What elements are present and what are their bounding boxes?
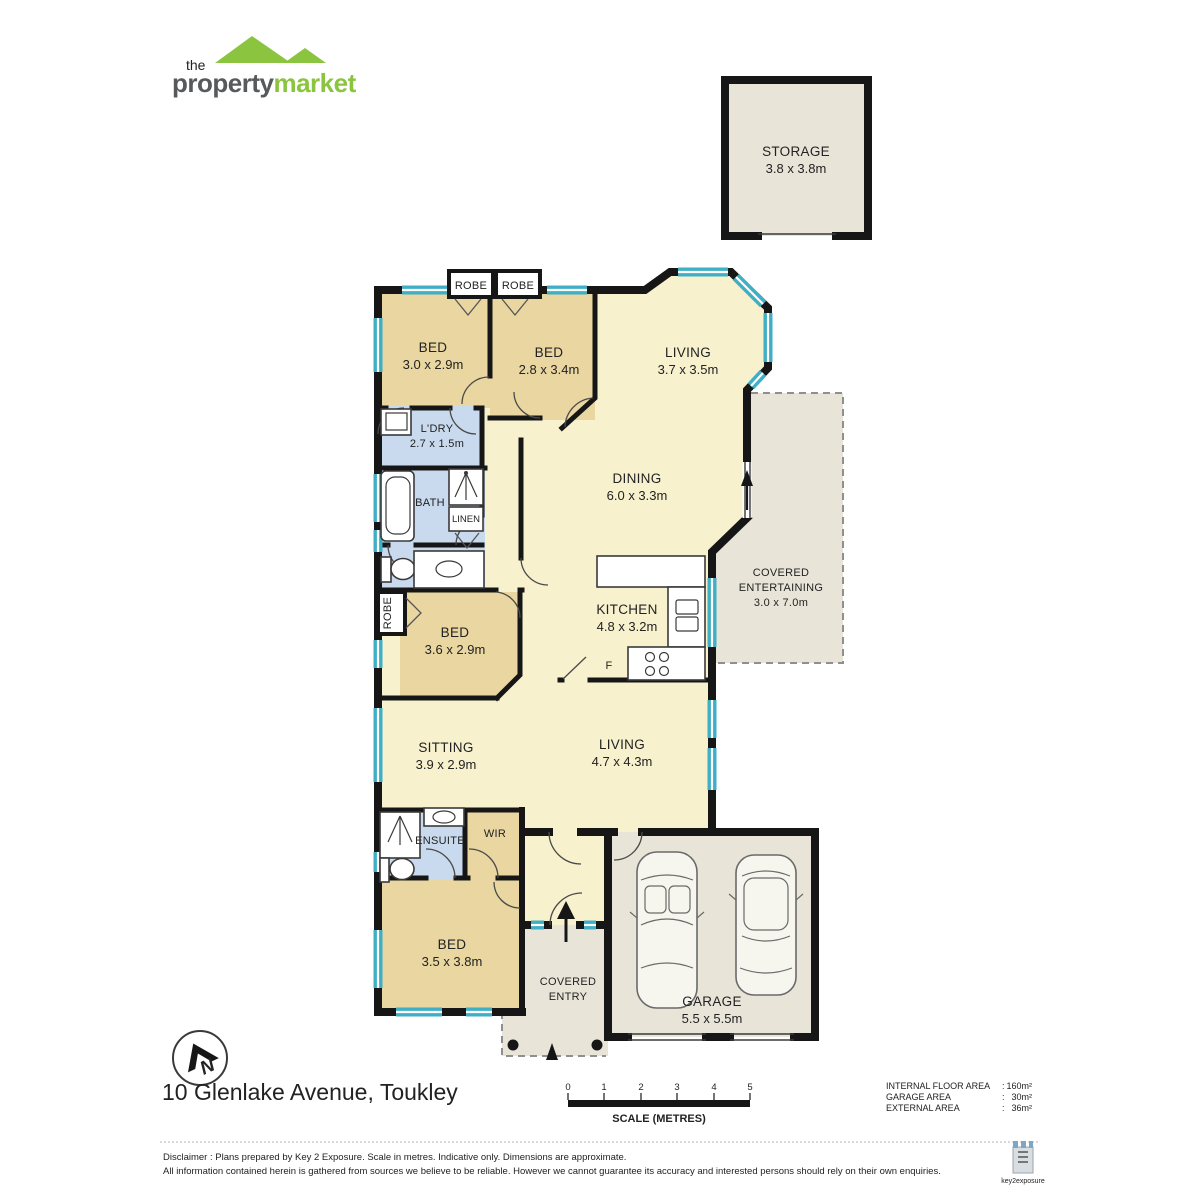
area-sep: : [1002, 1081, 1005, 1091]
ensuite-label: ENSUITE [415, 835, 465, 847]
ensuite-toilet-cistern [380, 858, 389, 882]
address-title: 10 Glenlake Avenue, Toukley [162, 1079, 458, 1105]
kitchen-bench-top [597, 556, 705, 587]
scale-tick-label: 3 [674, 1082, 679, 1093]
storage-dims: 3.8 x 3.8m [766, 161, 827, 176]
area-sep: : [1002, 1092, 1005, 1102]
laundry-label: L'DRY [421, 423, 454, 435]
scale-bar-rule [568, 1100, 750, 1107]
wir-label: WIR [484, 828, 506, 840]
castle-battlement-icon [1013, 1141, 1018, 1148]
robe-side-label: ROBE [382, 597, 394, 629]
scale-bar: 0 1 2 3 4 5 SCALE (METRES) [565, 1082, 752, 1125]
robe-label: ROBE [455, 280, 487, 292]
scale-ticks [568, 1093, 750, 1100]
covered-entertaining-dims: 3.0 x 7.0m [754, 597, 808, 609]
covered-entertaining-label2: ENTERTAINING [739, 582, 823, 594]
bed2-label: BED [535, 345, 564, 360]
castle-tower-icon [1013, 1147, 1033, 1173]
bed3-dims: 3.6 x 2.9m [425, 642, 486, 657]
scale-tick-label: 4 [711, 1082, 716, 1093]
laundry-dims: 2.7 x 1.5m [410, 438, 464, 450]
living1-dims: 3.7 x 3.5m [658, 362, 719, 377]
area-row: EXTERNAL AREA : 36m² [886, 1103, 1032, 1113]
disclaimer-line1: Disclaimer : Plans prepared by Key 2 Exp… [163, 1152, 626, 1163]
floorplan-drawing: the propertymarket [0, 0, 1200, 1200]
property-market-logo: the propertymarket [172, 36, 357, 98]
scale-tick-label: 5 [747, 1082, 752, 1093]
scale-tick-label: 0 [565, 1082, 570, 1093]
sitting-dims: 3.9 x 2.9m [416, 757, 477, 772]
key2exposure-logo: key2exposure [1001, 1141, 1045, 1185]
castle-battlement-icon [1029, 1141, 1033, 1148]
area-row: GARAGE AREA : 30m² [886, 1092, 1032, 1102]
toilet-cistern [381, 557, 391, 582]
car-convertible [630, 852, 704, 1008]
area-value: 160m² [1006, 1081, 1032, 1091]
castle-battlement-icon [1021, 1141, 1026, 1148]
area-label: EXTERNAL AREA [886, 1103, 960, 1113]
porch-floor [502, 1012, 608, 1056]
bed2-dims: 2.8 x 3.4m [519, 362, 580, 377]
bath-label: BATH [415, 497, 445, 509]
bed3-label: BED [441, 625, 470, 640]
logo-property: property [172, 68, 275, 98]
area-value: 30m² [1011, 1092, 1032, 1102]
bed4-dims: 3.5 x 3.8m [422, 954, 483, 969]
linen-label: LINEN [452, 514, 480, 525]
bed1-label: BED [419, 340, 448, 355]
living2-dims: 4.7 x 4.3m [592, 754, 653, 769]
scale-tick-label: 2 [638, 1082, 643, 1093]
area-row: INTERNAL FLOOR AREA : 160m² [886, 1081, 1032, 1091]
area-label: INTERNAL FLOOR AREA [886, 1081, 990, 1091]
area-value: 36m² [1011, 1103, 1032, 1113]
scale-bar-label: SCALE (METRES) [612, 1113, 706, 1125]
car-sedan [729, 855, 803, 995]
area-sep: : [1002, 1103, 1005, 1113]
area-label: GARAGE AREA [886, 1092, 951, 1102]
storage-label: STORAGE [762, 144, 830, 159]
svg-text:propertymarket: propertymarket [172, 68, 357, 98]
garage-dims: 5.5 x 5.5m [682, 1011, 743, 1026]
bed1-dims: 3.0 x 2.9m [403, 357, 464, 372]
living2-label: LIVING [599, 737, 645, 752]
fridge-label: F [605, 660, 612, 672]
ensuite-toilet-bowl [390, 859, 414, 880]
kitchen-dims: 4.8 x 3.2m [597, 619, 658, 634]
wir-floor [465, 810, 522, 880]
bed4-label: BED [438, 937, 467, 952]
footer-brand-label: key2exposure [1001, 1178, 1045, 1185]
logo-mountain-small-icon [284, 48, 326, 63]
disclaimer-line2: All information contained herein is gath… [163, 1166, 941, 1177]
logo-market: market [273, 68, 356, 98]
living1-label: LIVING [665, 345, 711, 360]
dining-dims: 6.0 x 3.3m [607, 488, 668, 503]
porch-post [592, 1040, 603, 1051]
sliding-door-dining [741, 462, 753, 518]
shower-head-icon [464, 471, 468, 475]
covered-entertaining-label1: COVERED [753, 567, 810, 579]
vanity [414, 551, 484, 588]
dining-label: DINING [612, 471, 661, 486]
scale-tick-label: 1 [601, 1082, 606, 1093]
robe-label: ROBE [502, 280, 534, 292]
kitchen-label: KITCHEN [596, 602, 657, 617]
logo-mountain-large-icon [215, 36, 291, 63]
area-table: INTERNAL FLOOR AREA : 160m² GARAGE AREA … [886, 1081, 1032, 1113]
north-arrow: N [173, 1031, 227, 1085]
toilet-bowl [391, 559, 415, 580]
sitting-label: SITTING [418, 740, 473, 755]
porch-post [508, 1040, 519, 1051]
covered-entry-label1: COVERED [540, 976, 597, 988]
garage-label: GARAGE [682, 994, 742, 1009]
covered-entry-label2: ENTRY [549, 991, 588, 1003]
floorplan-page: the propertymarket [0, 0, 1200, 1200]
